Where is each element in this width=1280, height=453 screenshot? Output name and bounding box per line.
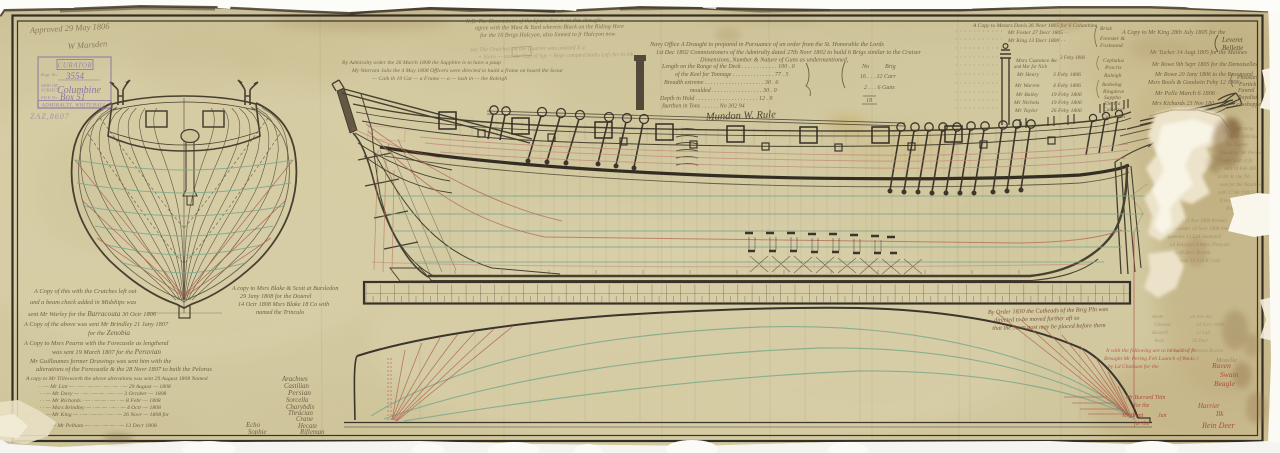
svg-text:and a beam check added in Mids: and a beam check added in Midships was [30,299,137,306]
svg-text:Mr Warren: Mr Warren [1014,83,1040,89]
svg-text:Bustard: Bustard [1152,331,1168,336]
svg-text:12 Lad: 12 Lad [1196,331,1211,336]
svg-text:moulded . . . . . . . . . . .: moulded . . . . . . . . . . . . . . . . … [690,88,777,94]
svg-text:· · — Mr King — · — · — — ·: · · — Mr King — · — · — — · — · — 26 Nov… [40,411,170,418]
svg-text:Msrs Bools & Goodwin Feby 12 1: Msrs Bools & Goodwin Feby 12 1806 · [1147,80,1243,86]
svg-text:Msrs Custance &c: Msrs Custance &c [1015,58,1058,64]
svg-text:Brig: Brig [885,64,896,70]
svg-text:By Admiralty order the 26 Marc: By Admiralty order the 26 March 1808 the… [342,60,501,66]
svg-text:Alexander 14 Novr 1808 Ams: Alexander 14 Novr 1808 Amsian [1169,227,1236,232]
svg-text:by Ld Chatham for the: by Ld Chatham for the [1108,363,1159,370]
svg-text:for the: for the [1134,420,1150,427]
svg-text:4 Feby 1806: 4 Feby 1806 [1053,83,1081,89]
svg-text:Brisk: Brisk [1100,26,1112,32]
svg-text:Ilk: Ilk [1215,410,1224,418]
svg-text:Mrs Kichards 23 Nov 180: Mrs Kichards 23 Nov 180 [1151,101,1214,107]
svg-text:for the 16 Brigs Halcyon, also: for the 16 Brigs Halcyon, also limned to… [480,31,616,39]
svg-text:Echo: Echo [245,422,261,429]
svg-text:3 Feby 1806: 3 Feby 1806 [1052,72,1081,78]
svg-text:Persian: Persian [287,388,311,397]
svg-text:Mode: Mode [1151,315,1164,320]
svg-text:Forester &: Forester & [1099,36,1125,42]
svg-text:Box 51: Box 51 [60,92,85,102]
svg-text:18: 18 [866,98,872,104]
svg-text:was sent 19 March 1807 for the: was sent 19 March 1807 for the Peruvian [52,348,161,356]
svg-text:Mr Bailey: Mr Bailey [1015,92,1039,98]
svg-text:Mr Foster 27 Decr 1805 · ·: Mr Foster 27 Decr 1805 · · [1007,30,1069,36]
svg-text:named the Trinculo: named the Trinculo [256,309,304,316]
svg-text:3554: 3554 [65,71,85,81]
svg-text:alterations of the Forecastle: alterations of the Forecastle & the 28 N… [36,366,212,373]
svg-text:Royalist: Royalist [1237,95,1257,101]
svg-text:Fawnil: Fawnil [1237,88,1255,94]
svg-text:19 Feby 1806: 19 Feby 1806 [1051,100,1082,106]
svg-text:FILE No.: FILE No. [40,95,58,100]
svg-text:Redwing: Redwing [1101,82,1122,88]
svg-text:sent for the Nautilus: sent for the Nautilus [1220,183,1261,188]
svg-text:Mr Rowe 9th Sepr 1805 for the: Mr Rowe 9th Sepr 1805 for the Demoiselle… [1151,61,1258,68]
svg-text:Length on the Range of the Dec: Length on the Range of the Deck . . . . … [661,63,795,70]
svg-text:Dimensions, Number & Nature of: Dimensions, Number & Nature of Guns as u… [699,57,849,64]
svg-text:to Mr B. the 7th: to Mr B. the 7th [1218,175,1250,180]
svg-text:for the: for the [1134,402,1150,409]
svg-text:Regt. No.: Regt. No. [40,72,58,77]
svg-text:sent Mr Warley for the Barraco: sent Mr Warley for the Barracouta 30 Oct… [28,310,157,318]
svg-text:26 Feby 1806: 26 Feby 1806 [1051,108,1082,114]
svg-text:— Calk th 10 Cat — a Frame —: — Calk th 10 Cat — a Frame — a — lash in… [371,76,507,82]
svg-text:14 Octr 1808 Msrs Blake 18 Co: 14 Octr 1808 Msrs Blake 18 Co with [238,301,329,308]
svg-text:Mr Taylor: Mr Taylor [1014,108,1038,114]
svg-text:· · — Mr Davy — · — · — — ·: · · — Mr Davy — · — · — — · — · — 3 Octo… [40,391,167,397]
svg-text:Foxhound: Foxhound [1099,43,1123,49]
svg-text:· · — Mr Richards · — · — —: · · — Mr Richards · — · — — · — · — 8 Fe… [40,398,161,404]
svg-text:Mr Burrard Tittn: Mr Burrard Tittn [1125,395,1166,401]
svg-text:29 Jany 1808 for the Doterel: 29 Jany 1808 for the Doterel [240,293,312,300]
svg-text:19 Feby 1806: 19 Feby 1806 [1051,92,1082,98]
svg-text:A Copy to Msrs Pearns with the: A Copy to Msrs Pearns with the Forecastl… [23,340,169,347]
svg-text:1st Dec 1802 Commissioners of: 1st Dec 1802 Commissioners of the Admira… [656,49,922,56]
svg-text:for the Zenobia: for the Zenobia [88,329,130,337]
svg-text:3 Feby 1806: 3 Feby 1806 [1060,56,1085,61]
svg-text:Raven: Raven [1211,361,1231,370]
svg-text:ZAZ,8607: ZAZ,8607 [30,112,70,121]
svg-text:Raleigh: Raleigh [1103,73,1122,79]
svg-text:Rein Deer: Rein Deer [1201,421,1236,430]
svg-text:of the Keel for Tonnage . . .: of the Keel for Tonnage . . . . . . . . … [675,71,788,78]
svg-text:Depth in Hold . . . . . . . .: Depth in Hold . . . . . . . . . . . . . … [659,96,772,102]
svg-text:Cephalus: Cephalus [1103,58,1124,64]
svg-text:Avon: Avon [1153,339,1164,344]
svg-text:Brought Mr Pering Feb Launch o: Brought Mr Pering Feb Launch of the L [1104,355,1194,362]
svg-text:Sophie: Sophie [248,429,267,436]
svg-text:My Warrant Jults the 4 May 18: My Warrant Jults the 4 May 1808 Officers… [351,67,563,74]
svg-text:A Copy to Mr King 28th July 18: A Copy to Mr King 28th July 1805 for the [1121,29,1226,36]
svg-text:Crane: Crane [296,416,313,423]
svg-text:Jun: Jun [1158,413,1166,419]
svg-text:Burthen in Tons . . . . . . N: Burthen in Tons . . . . . . No 302 94 [662,103,745,110]
svg-text:CURATOR: CURATOR [58,62,93,70]
svg-text:Cameron: Cameron [1103,107,1124,113]
svg-text:Grasshopper: Grasshopper [1233,102,1264,108]
svg-text:Arachnes: Arachnes [281,376,308,383]
svg-text:Procris: Procris [1104,65,1122,71]
svg-text:Mr Brent: Mr Brent [1121,413,1144,419]
svg-text:· · — Mr Lint — · — · — — ·: · · — Mr Lint — · — · — — · — · — · — 29… [38,384,171,390]
svg-text:· · — Msrs Brindley — · — —: · · — Msrs Brindley — · — — · — · — 4 Oc… [40,405,161,411]
svg-text:It with the following are to b: It with the following are to be built of… [1105,347,1197,354]
svg-text:Sorcella: Sorcella [286,397,309,404]
svg-text:No: No [861,64,869,70]
svg-text:Mr Pelle March 6 1806 ·: Mr Pelle March 6 1806 · [1154,90,1219,97]
svg-text:Harrier: Harrier [1197,402,1220,410]
svg-text:2 . . . 6 Guns: 2 . . . 6 Guns [864,85,895,91]
svg-text:Gilmour: Gilmour [1154,323,1171,328]
svg-text:A copy to Msrs Blake & Scott a: A copy to Msrs Blake & Scott at Bursledo… [231,285,338,292]
svg-text:Mr Henry: Mr Henry [1016,72,1040,78]
svg-text:Pheasant: Pheasant [1236,75,1259,81]
svg-text:Breadth extreme . . . . . . .: Breadth extreme . . . . . . . . . . . . … [664,80,778,86]
svg-text:ADMIRALTY, WHITEHALL: ADMIRALTY, WHITEHALL [41,103,106,108]
svg-text:Mr King 13 Decr 1800 · ·: Mr King 13 Decr 1800 · · [1007,38,1065,44]
svg-text:Beagle: Beagle [1214,379,1235,388]
svg-text:Mr Nichols: Mr Nichols [1013,100,1039,106]
svg-text:· — Mr Pelham — · — · — — · —: · — Mr Pelham — · — · — — · — 13 Decr 18… [48,423,157,429]
svg-text:A Copy of the above was sent M: A Copy of the above was sent Mr Brindley… [23,321,169,328]
svg-text:and Msr for Nich: and Msr for Nich [1014,65,1048,70]
svg-text:A copy to Mr Tillesworth the a: A copy to Mr Tillesworth the above alter… [25,376,208,382]
svg-text:20 Decr: 20 Decr [1192,339,1208,344]
svg-text:Navy Office A Draught to pre: Navy Office A Draught to prepared in Pur… [649,41,884,48]
svg-text:16 . . . 32 Carr: 16 . . . 32 Carr [860,74,896,80]
svg-text:Rifleman: Rifleman [299,429,325,436]
svg-text:Mr Guillaumes former Drawings: Mr Guillaumes former Drawings was sent h… [29,358,171,365]
svg-text:Carnation: Carnation [1102,114,1125,120]
svg-text:Leveret: Leveret [1221,36,1244,44]
svg-text:28 Nov m/t: 28 Nov m/t [1190,315,1213,320]
svg-text:14 Novr 1808: 14 Novr 1808 [1196,323,1224,328]
svg-text:A Copy of this with the Crutch: A Copy of this with the Crutches left ou… [33,288,137,295]
